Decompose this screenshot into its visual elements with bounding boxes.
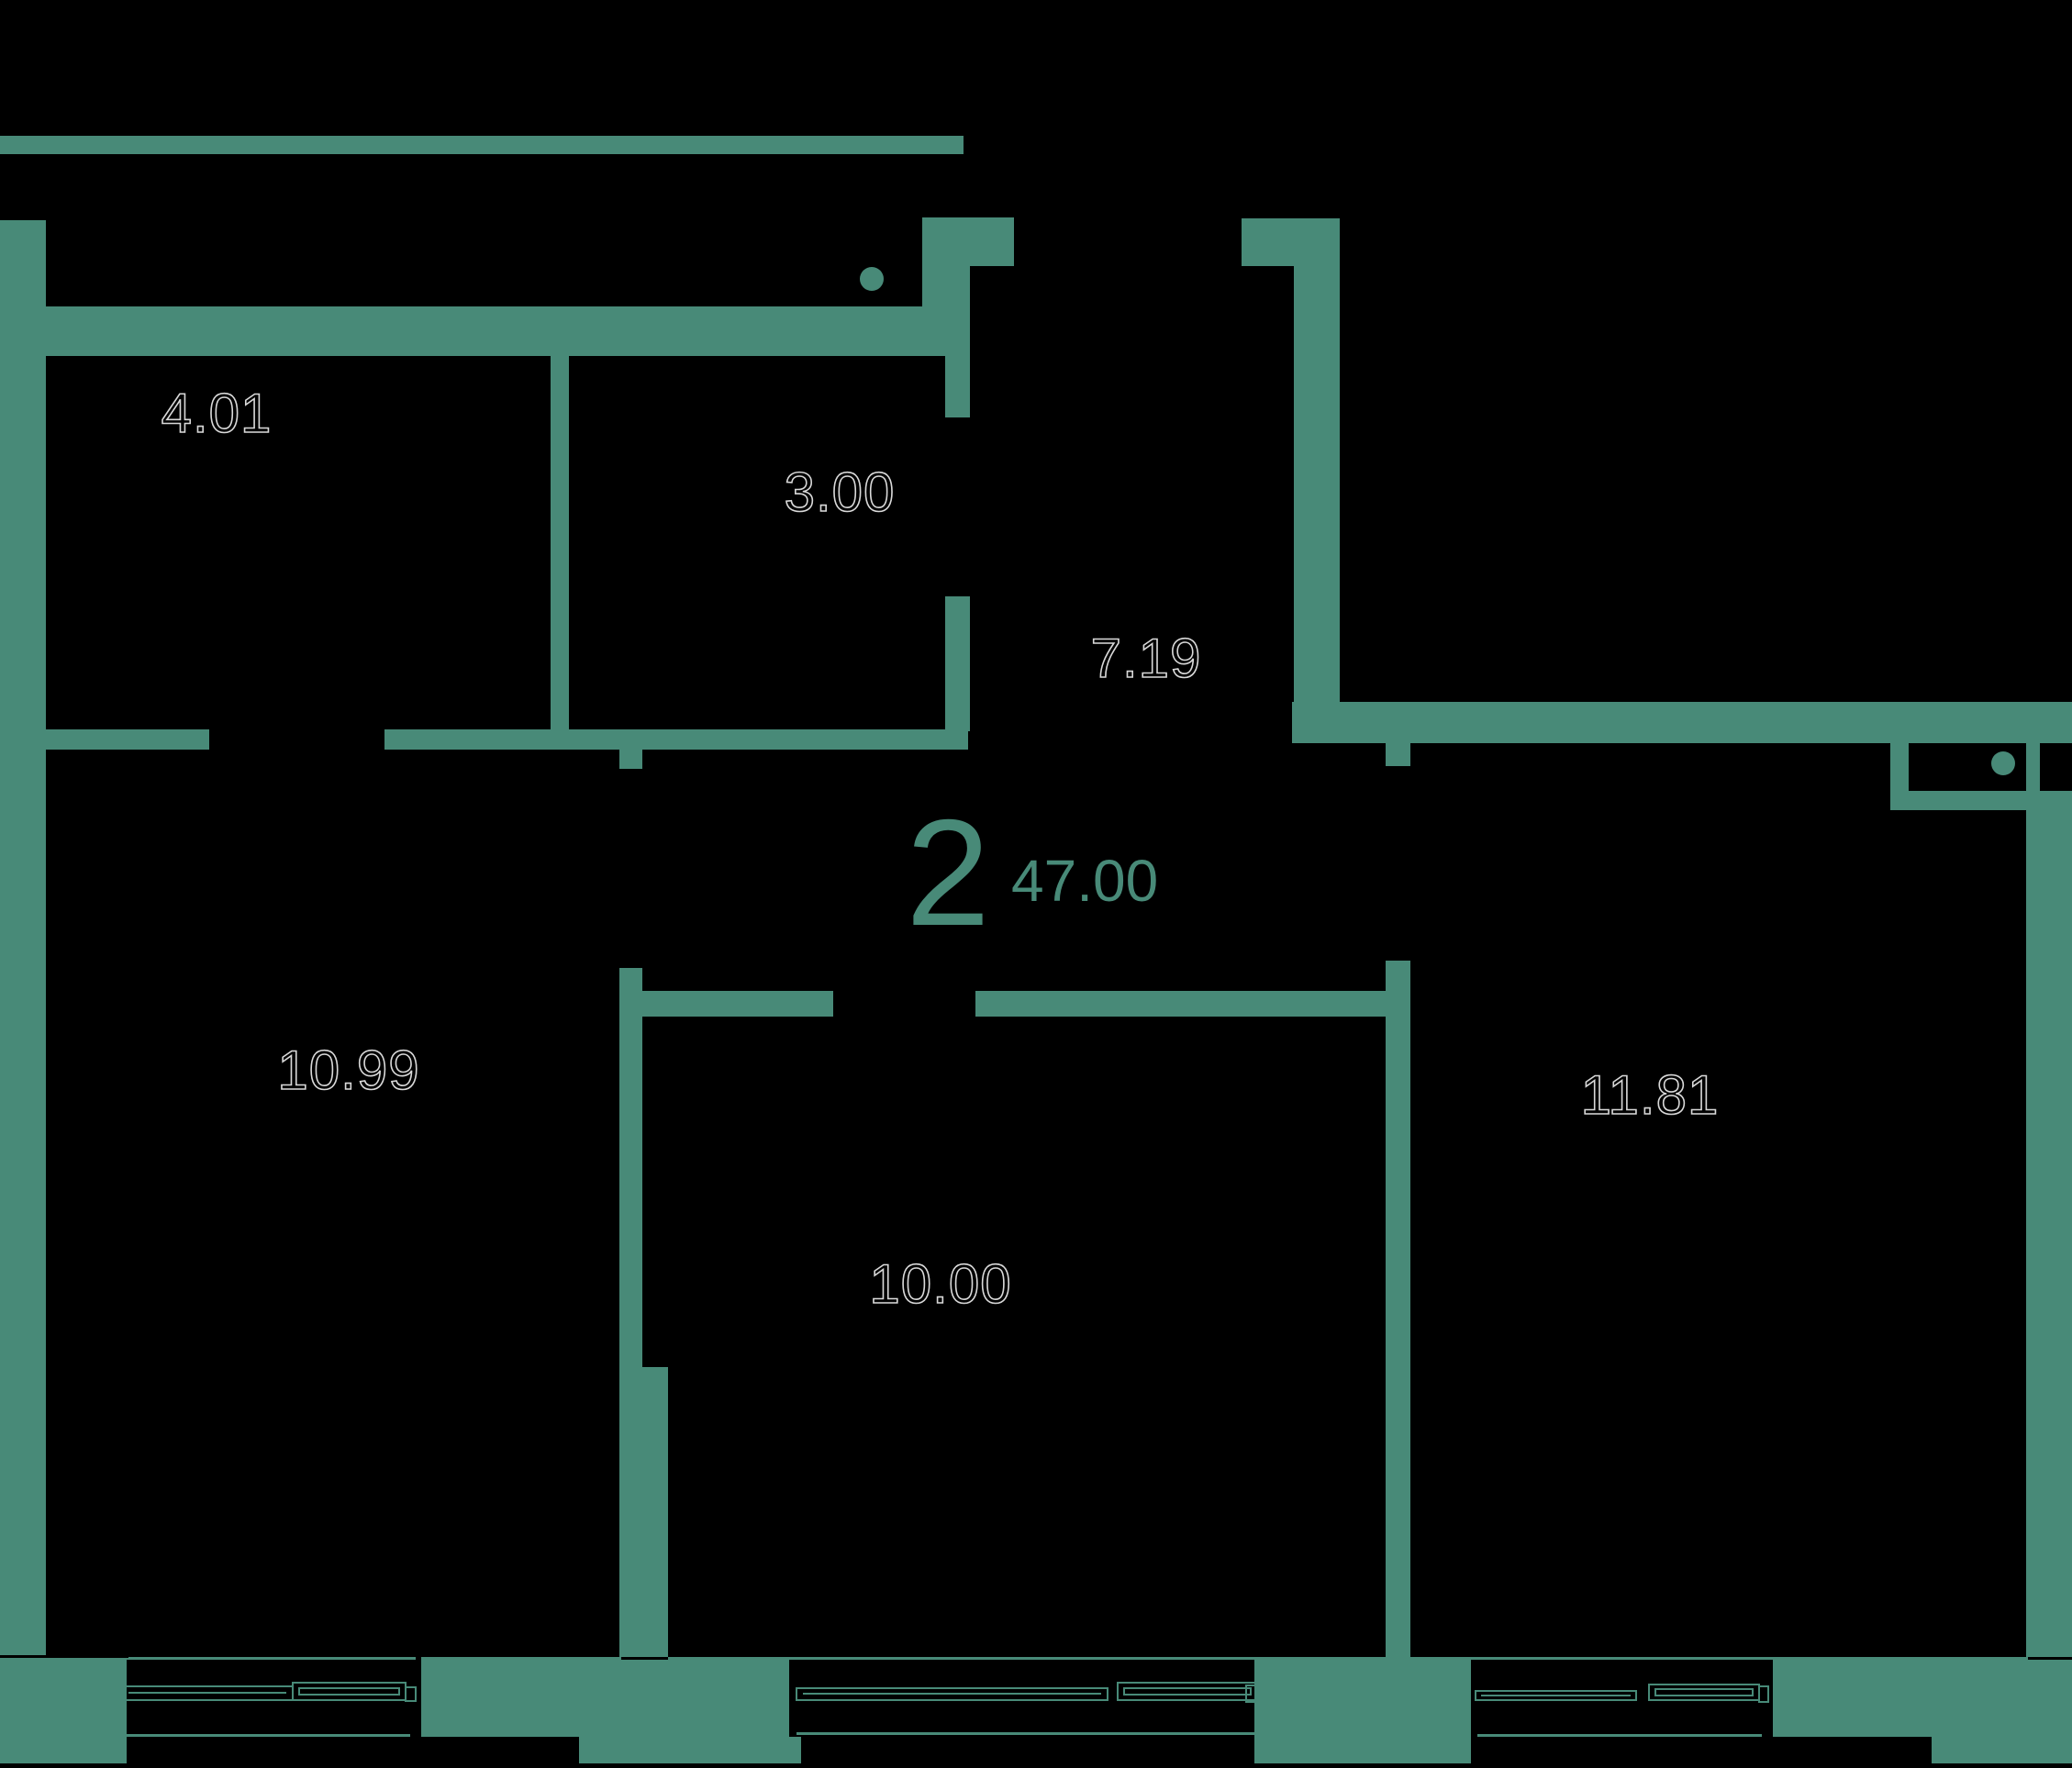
bedroom-kitchen-wall-thick — [619, 1367, 668, 1657]
room-10-00-label: 10.00 — [869, 1253, 1011, 1315]
window3-pane1-bar — [1481, 1695, 1631, 1696]
floor-plan: 4.013.007.1910.9910.0011.81247.00 — [0, 0, 2072, 1768]
kitchen-living-doorframe-stub — [1386, 740, 1410, 766]
window3-sill-line — [1477, 1734, 1762, 1737]
bath-right-wall-lower — [945, 596, 970, 731]
window2-head-line — [789, 1657, 1254, 1660]
facade-pier-2 — [421, 1657, 789, 1737]
entry-niche-bottom-wall — [1890, 791, 2040, 810]
window1-head-line — [116, 1657, 416, 1660]
bedroom-doorframe-stub — [619, 750, 642, 769]
room-10-99-label: 10.99 — [277, 1040, 419, 1101]
entrance-door-dot — [1991, 751, 2015, 775]
balcony-right-head-wall — [922, 217, 1014, 266]
facade-line-left-pier-top — [0, 1655, 128, 1658]
balcony-top-rail-wall — [0, 136, 964, 154]
kitchen-living-divider-wall — [1386, 961, 1410, 1657]
rooms-count-label: 2 — [906, 788, 990, 957]
window3-head-line — [1471, 1657, 1773, 1660]
facade-pier-3 — [1254, 1657, 1471, 1763]
hall-left-wall — [1294, 266, 1340, 704]
entry-top-wall — [1292, 702, 2072, 743]
facade-porch-block — [579, 1737, 801, 1763]
left-outer-wall — [0, 220, 46, 1657]
right-outer-wall — [2026, 791, 2072, 1657]
window1-pane1-bar — [128, 1692, 286, 1694]
room-11-81-label: 11.81 — [1581, 1064, 1720, 1126]
corridor-top-wall-left — [46, 729, 209, 750]
balcony-right-connector-wall — [922, 266, 970, 308]
facade-line-right-wall-foot — [2028, 1657, 2072, 1660]
facade-line-under-bedroom-wall — [621, 1657, 668, 1660]
balcony-door-dot — [860, 267, 884, 291]
hall-bottom-wall — [975, 991, 1410, 1017]
facade-pier-left-corner — [0, 1657, 127, 1763]
bath-right-wall-upper — [945, 356, 970, 417]
facade-corner-block-right — [1932, 1737, 2072, 1763]
room-7-19-label: 7.19 — [1091, 628, 1202, 689]
room-4-01-label: 4.01 — [162, 383, 273, 444]
kitchen-top-wall-left — [642, 991, 833, 1017]
window2-sill-line — [796, 1732, 1254, 1735]
wardrobe-bath-divider-wall — [551, 356, 569, 731]
window1-sill-line — [127, 1734, 410, 1737]
facade-pier-4 — [1773, 1657, 2072, 1737]
window2-pane1-bar — [803, 1693, 1101, 1695]
bedroom-kitchen-wall-thin — [619, 968, 642, 1367]
balcony-bottom-thick-wall — [0, 306, 970, 356]
total-area-label: 47.00 — [1011, 848, 1158, 914]
room-3-00-label: 3.00 — [785, 461, 896, 523]
corridor-top-wall-right — [384, 729, 968, 750]
floor-plan-canvas: 4.013.007.1910.9910.0011.81247.00 — [0, 0, 2072, 1763]
hall-left-head-wall — [1242, 218, 1340, 266]
